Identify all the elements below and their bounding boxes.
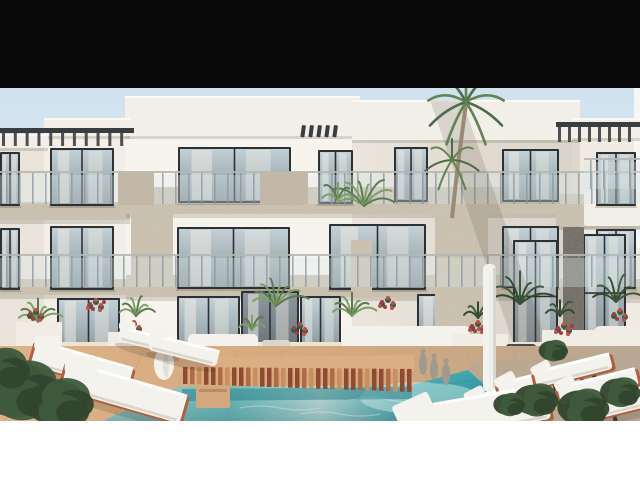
letterbox-top-bar <box>0 0 640 88</box>
glass-railing <box>0 171 640 204</box>
screenshot-canvas <box>0 0 640 480</box>
glass-railing <box>584 158 640 189</box>
architecture-render <box>0 0 640 480</box>
glass-railing <box>0 254 640 287</box>
render-scene <box>0 72 640 455</box>
letterbox-bottom-bar <box>0 421 640 480</box>
